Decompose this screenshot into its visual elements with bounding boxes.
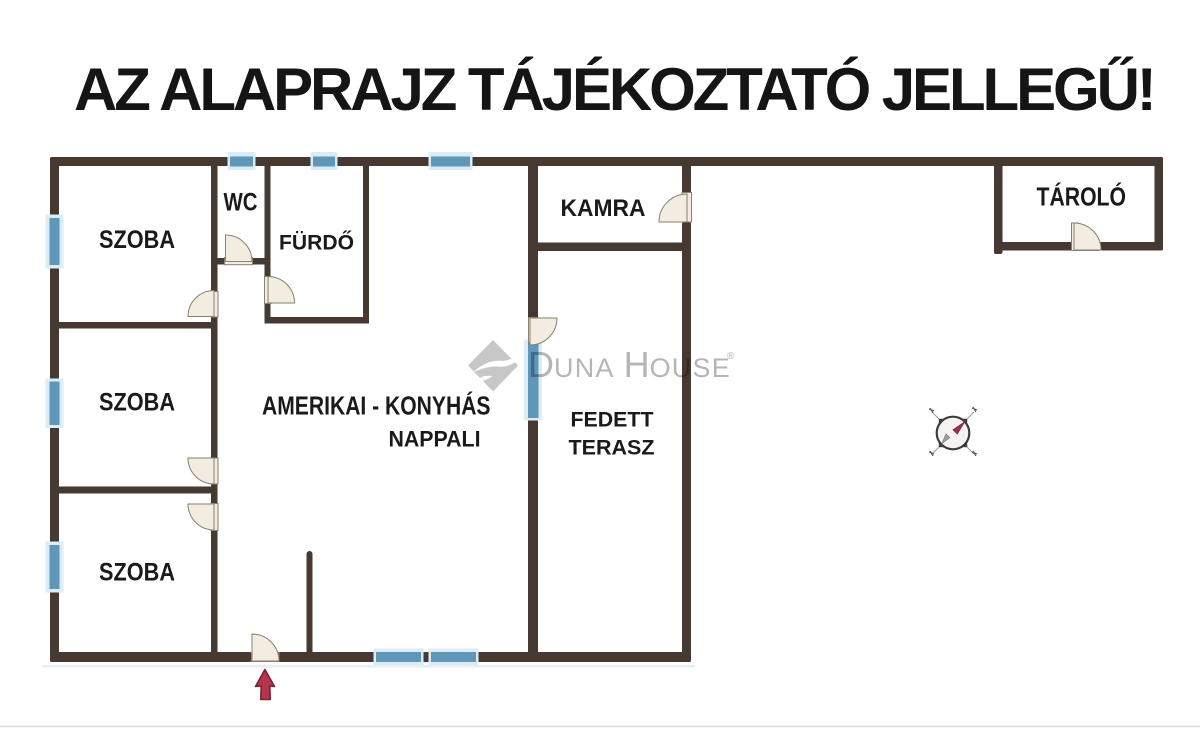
svg-text:WC: WC [224, 189, 258, 217]
svg-text:NAPPALI: NAPPALI [389, 427, 481, 452]
svg-text:FÜRDŐ: FÜRDŐ [279, 230, 354, 255]
svg-text:SZOBA: SZOBA [99, 559, 175, 587]
svg-text:AMERIKAI - KONYHÁS: AMERIKAI - KONYHÁS [262, 392, 491, 421]
svg-text:DUNAHOUSE: DUNAHOUSE [528, 344, 731, 385]
svg-text:AZ ALAPRAJZ TÁJÉKOZTATÓ JELLEG: AZ ALAPRAJZ TÁJÉKOZTATÓ JELLEGŰ! [74, 56, 1154, 123]
svg-text:TÁROLÓ: TÁROLÓ [1037, 182, 1127, 212]
svg-text:®: ® [727, 351, 735, 362]
svg-text:KAMRA: KAMRA [561, 195, 646, 222]
svg-text:FEDETT: FEDETT [571, 408, 654, 432]
svg-text:SZOBA: SZOBA [99, 389, 175, 417]
svg-text:SZOBA: SZOBA [99, 226, 175, 254]
svg-text:TERASZ: TERASZ [569, 436, 655, 460]
